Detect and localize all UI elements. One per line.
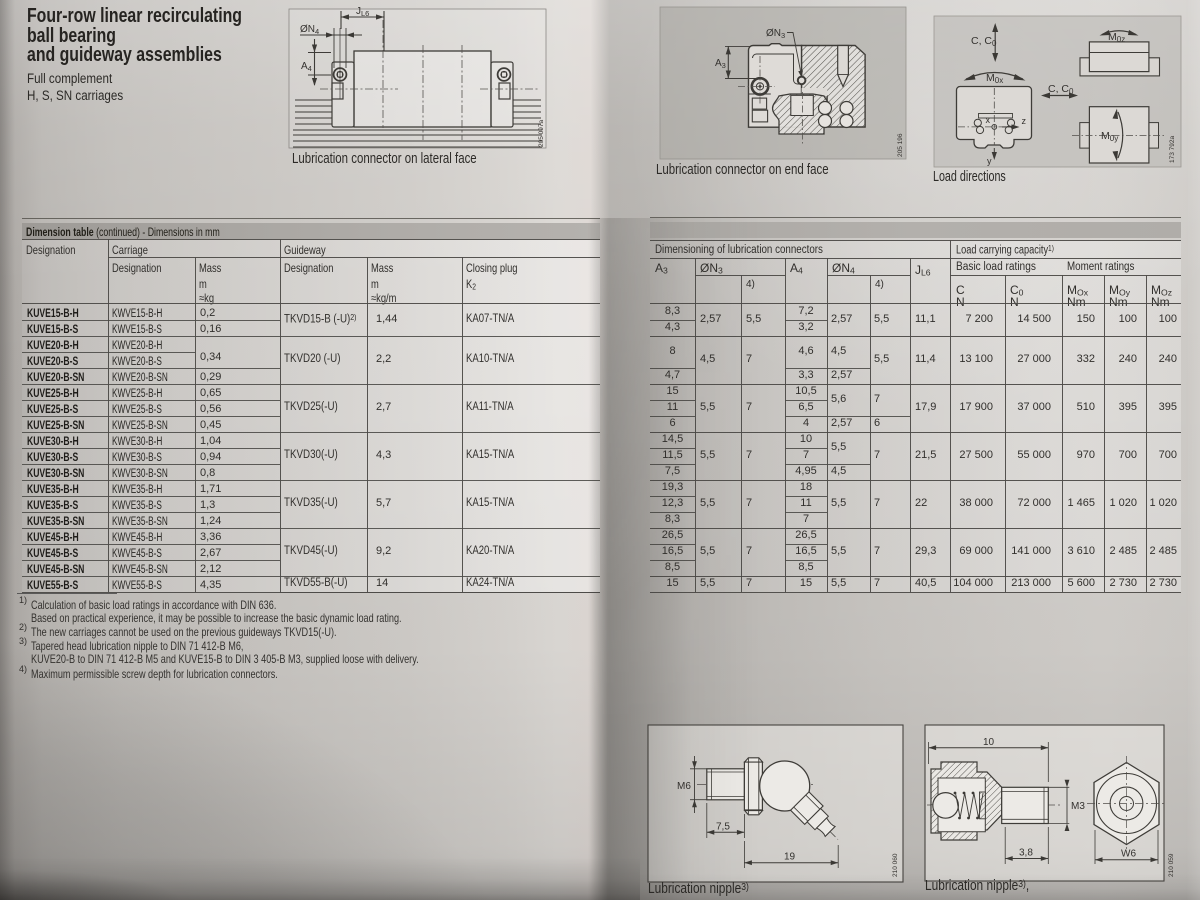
svg-text:W6: W6 bbox=[1121, 849, 1136, 860]
svg-text:173 792a: 173 792a bbox=[1169, 136, 1176, 163]
svg-text:x: x bbox=[986, 115, 991, 125]
svg-text:y: y bbox=[987, 156, 992, 166]
svg-text:205 196: 205 196 bbox=[897, 133, 904, 157]
svg-text:z: z bbox=[1022, 116, 1027, 126]
svg-text:3,8: 3,8 bbox=[1019, 848, 1033, 859]
svg-text:M3: M3 bbox=[1071, 801, 1085, 812]
svg-text:10: 10 bbox=[983, 737, 995, 748]
svg-text:JL6: JL6 bbox=[356, 6, 369, 18]
svg-text:205 097a: 205 097a bbox=[538, 120, 545, 147]
